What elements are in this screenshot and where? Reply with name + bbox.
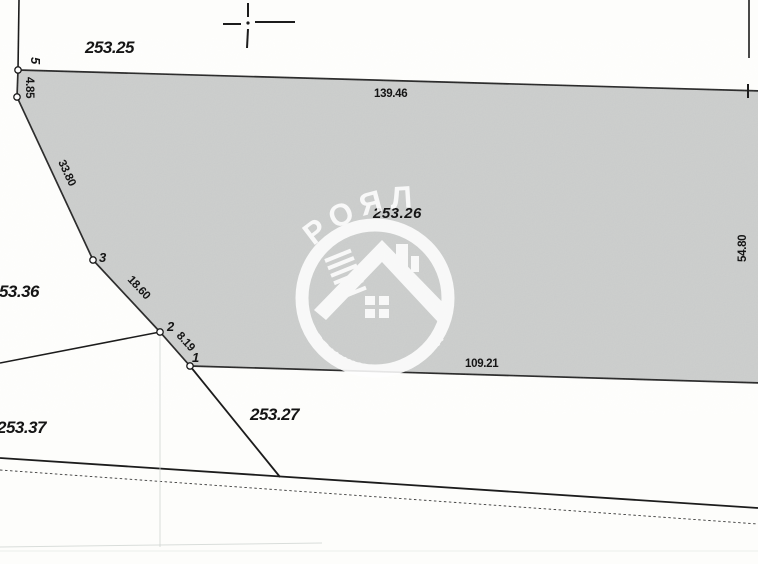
neighbor-label-bottom: 253.27	[249, 405, 301, 424]
sketch-canvas: 253.26 РОЯЛ НЕДВИЖИМИ	[0, 0, 758, 564]
point-5-marker	[15, 67, 21, 73]
road-line-dotted	[0, 470, 758, 524]
point-4-marker	[14, 94, 20, 100]
registration-cross-icon	[223, 3, 295, 48]
left-boundary-to-point2	[0, 332, 160, 363]
point-label-1: 1	[192, 350, 199, 365]
faint-horizontal-line	[0, 543, 322, 547]
dim-bottom: 109.21	[465, 358, 499, 370]
point-label-3: 3	[99, 250, 107, 265]
chimney-icon-2	[411, 256, 419, 272]
point-label-5: 5	[28, 57, 43, 65]
neighbor-label-left: 253.36	[0, 282, 40, 301]
neighbor-label-top: 253.25	[84, 38, 135, 57]
left-top-boundary-line	[18, 0, 19, 70]
point-2-marker	[157, 329, 163, 335]
dim-top: 139.46	[374, 88, 407, 100]
neighbor-label-bottom-left: 253.37	[0, 418, 48, 437]
road-line-solid	[0, 458, 758, 508]
point-label-2: 2	[166, 319, 175, 334]
chimney-icon	[396, 244, 408, 272]
point-3-marker	[90, 257, 96, 263]
cadastral-sketch: 253.26 РОЯЛ НЕДВИЖИМИ	[0, 0, 758, 564]
dim-right: 54.80	[737, 235, 749, 262]
dim-left-vertical: 4.85	[23, 77, 35, 99]
